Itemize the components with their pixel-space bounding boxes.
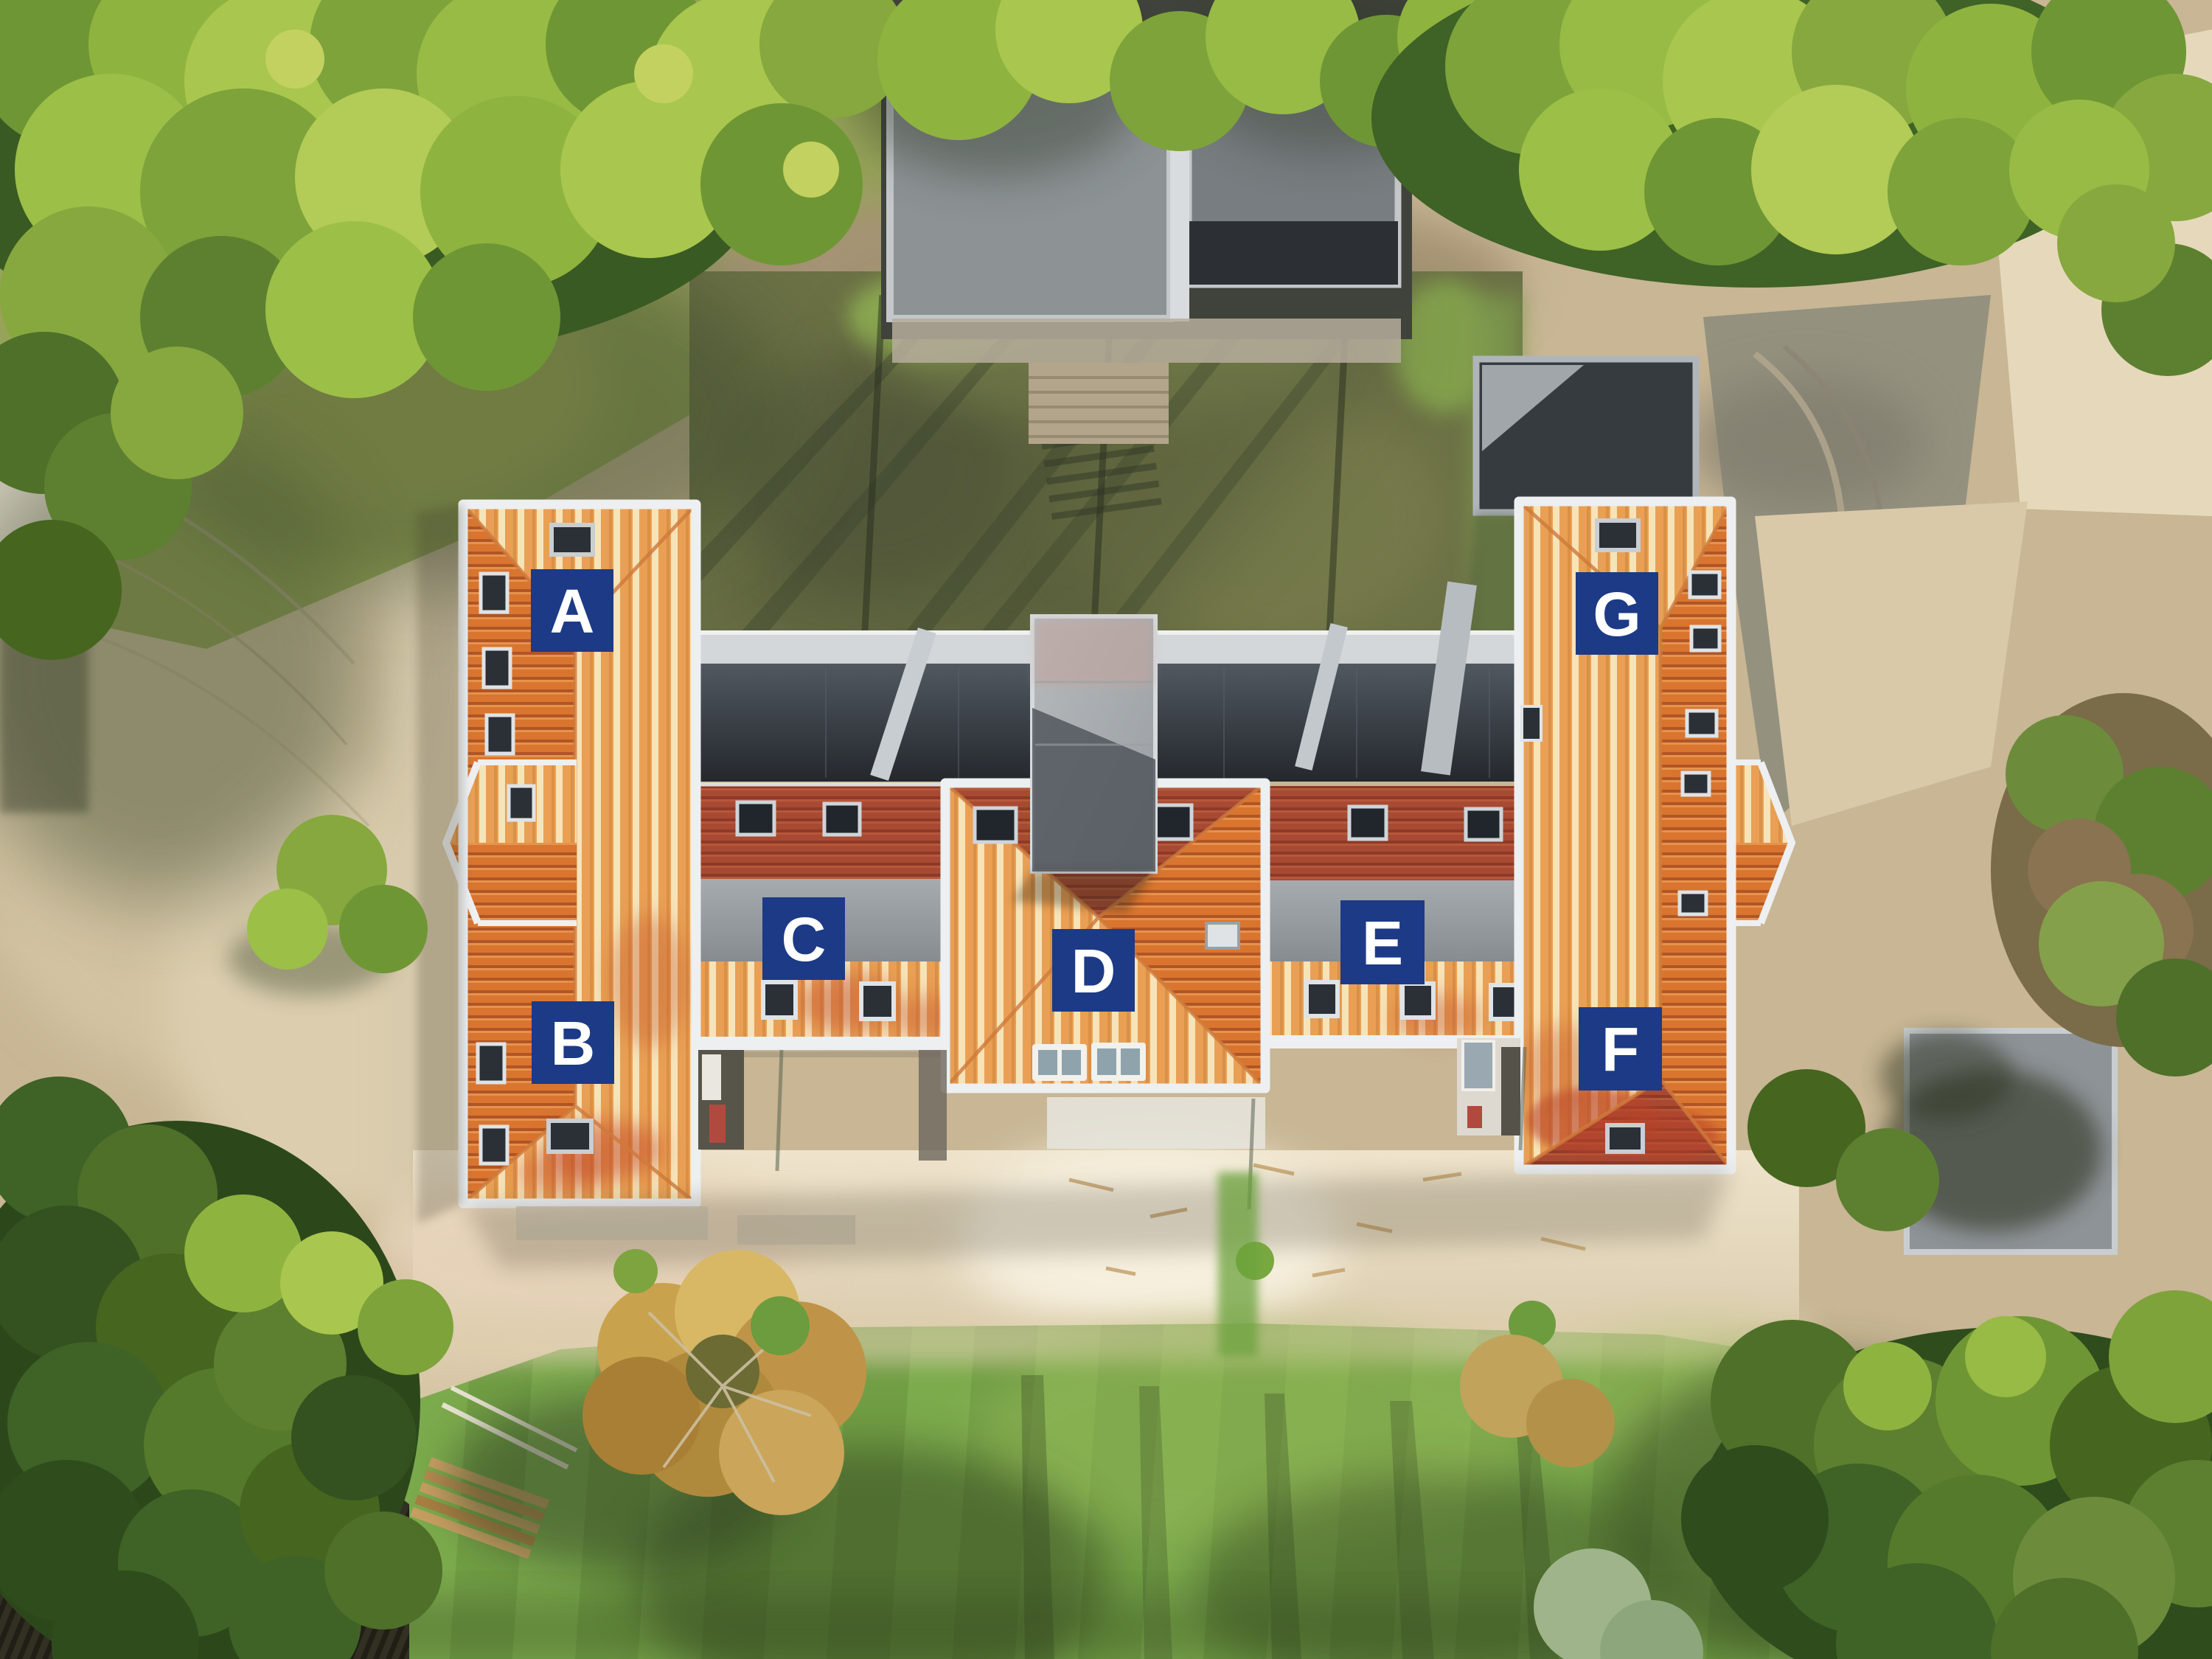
skylight	[975, 808, 1016, 842]
unit-label-g: G	[1576, 572, 1658, 655]
scene: ABCDEFG	[0, 0, 2212, 1659]
unit-label-letter: F	[1601, 1015, 1639, 1085]
plank-walkway	[1029, 363, 1169, 444]
unit-label-letter: B	[551, 1009, 596, 1078]
unit-label-d: D	[1052, 929, 1135, 1012]
unit-label-letter: E	[1362, 908, 1403, 978]
aerial-site-photo: ABCDEFG	[0, 0, 2212, 1659]
skylight	[824, 804, 860, 835]
d-south-facade	[1047, 1097, 1265, 1149]
red-accent-wall	[1467, 1106, 1482, 1128]
roof-window	[1307, 982, 1338, 1016]
skylight	[1466, 809, 1501, 840]
house-c-eave	[699, 1037, 945, 1050]
unit-label-letter: G	[1593, 580, 1641, 649]
skylight	[1349, 807, 1386, 839]
d-roof-tower	[1012, 616, 1155, 913]
facade-window	[1463, 1041, 1494, 1090]
unit-label-letter: A	[550, 577, 595, 646]
roof-window	[509, 786, 534, 820]
unit-label-letter: C	[782, 905, 827, 974]
roof-vent	[1206, 923, 1239, 948]
unit-label-a: A	[531, 569, 613, 652]
roof-window	[763, 982, 796, 1018]
skylight	[737, 802, 774, 835]
unit-label-f: F	[1579, 1007, 1662, 1091]
unit-label-b: B	[532, 1001, 614, 1084]
tree-cluster-bottom-right	[1681, 1290, 2212, 1659]
red-accent-wall	[709, 1105, 726, 1143]
entry-door	[702, 1054, 721, 1100]
unit-label-e: E	[1340, 900, 1425, 984]
roof-window	[861, 984, 894, 1019]
unit-label-c: C	[762, 897, 845, 980]
unit-label-letter: D	[1071, 936, 1116, 1006]
roof-window	[1402, 984, 1433, 1018]
